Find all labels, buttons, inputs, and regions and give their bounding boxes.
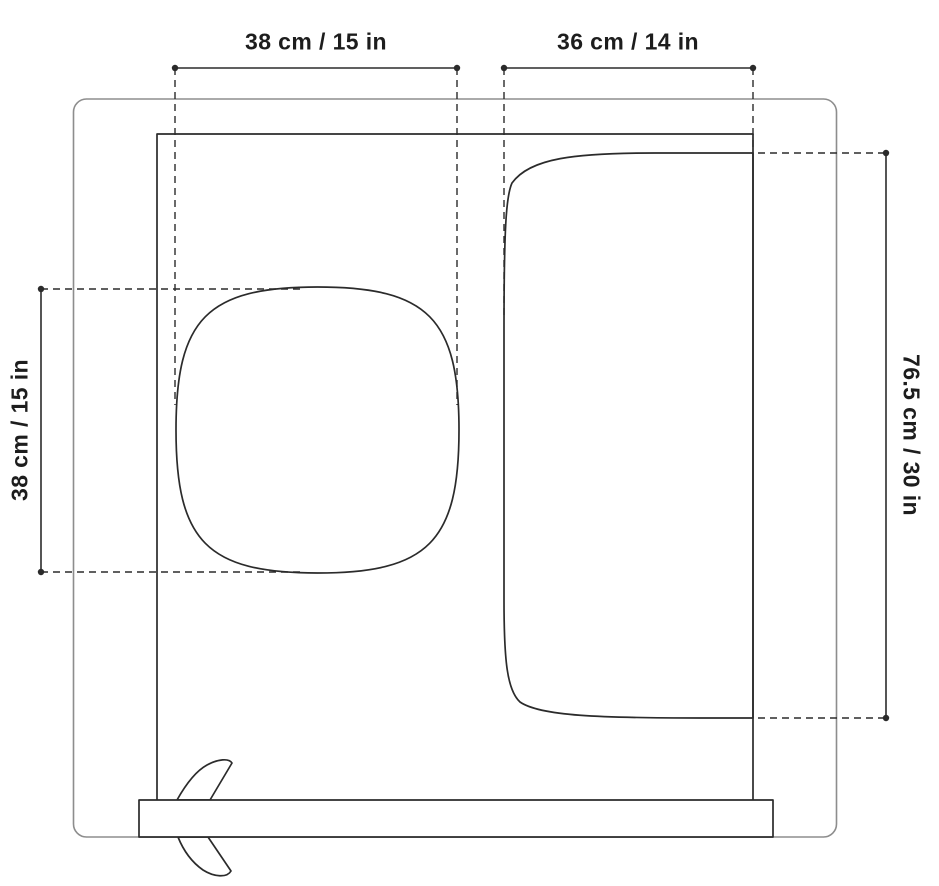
outer-body-outline: [74, 99, 837, 837]
mat-height-label: 76.5 cm / 30 in: [898, 354, 925, 516]
mat-width-endpoint-dot: [750, 65, 756, 71]
front-rail: [139, 800, 773, 837]
mat-height-endpoint-dot: [883, 150, 889, 156]
basin-width-endpoint-dot: [172, 65, 178, 71]
lever-lower-blade: [178, 837, 231, 876]
mat-outline: [504, 153, 753, 718]
basin-width-label: 38 cm / 15 in: [245, 29, 387, 56]
basin-outline: [176, 287, 459, 573]
lever-upper-blade: [177, 760, 232, 800]
diagram-canvas: [0, 0, 939, 886]
basin-width-endpoint-dot: [454, 65, 460, 71]
inner-panel-outline: [157, 134, 753, 800]
mat-width-endpoint-dot: [501, 65, 507, 71]
dimension-diagram: 38 cm / 15 in 36 cm / 14 in 38 cm / 15 i…: [0, 0, 939, 886]
mat-width-label: 36 cm / 14 in: [557, 29, 699, 56]
mat-height-endpoint-dot: [883, 715, 889, 721]
basin-height-endpoint-dot: [38, 286, 44, 292]
basin-height-label: 38 cm / 15 in: [7, 359, 34, 501]
basin-height-endpoint-dot: [38, 569, 44, 575]
